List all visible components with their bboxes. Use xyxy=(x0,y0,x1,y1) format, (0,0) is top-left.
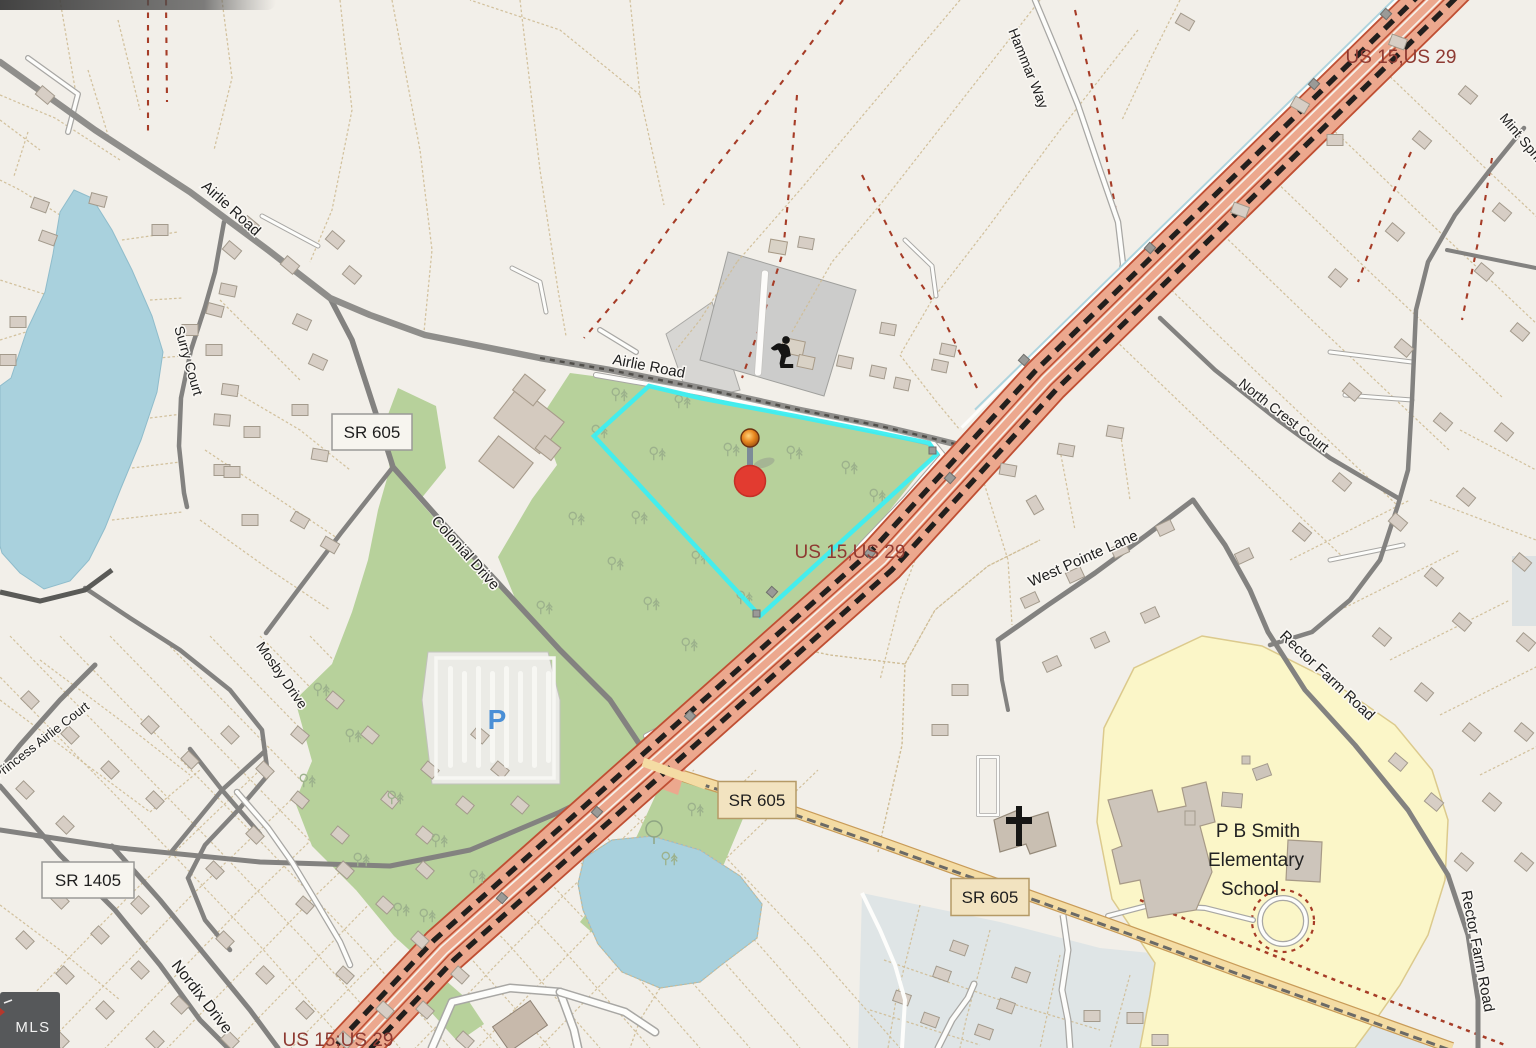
svg-text:US 15,US 29: US 15,US 29 xyxy=(795,542,906,563)
svg-text:SR 605: SR 605 xyxy=(962,888,1019,907)
svg-text:SR 1405: SR 1405 xyxy=(55,871,121,890)
svg-text:US 15;US 29: US 15;US 29 xyxy=(283,1030,394,1048)
svg-text:Elementary: Elementary xyxy=(1208,850,1305,871)
svg-text:School: School xyxy=(1221,879,1279,900)
svg-text:US 15,US 29: US 15,US 29 xyxy=(1346,47,1457,68)
svg-text:P B Smith: P B Smith xyxy=(1216,821,1300,842)
svg-text:P: P xyxy=(488,704,507,735)
svg-text:SR 605: SR 605 xyxy=(729,791,786,810)
svg-text:SR 605: SR 605 xyxy=(344,423,401,442)
svg-text:MLS: MLS xyxy=(15,1019,50,1036)
